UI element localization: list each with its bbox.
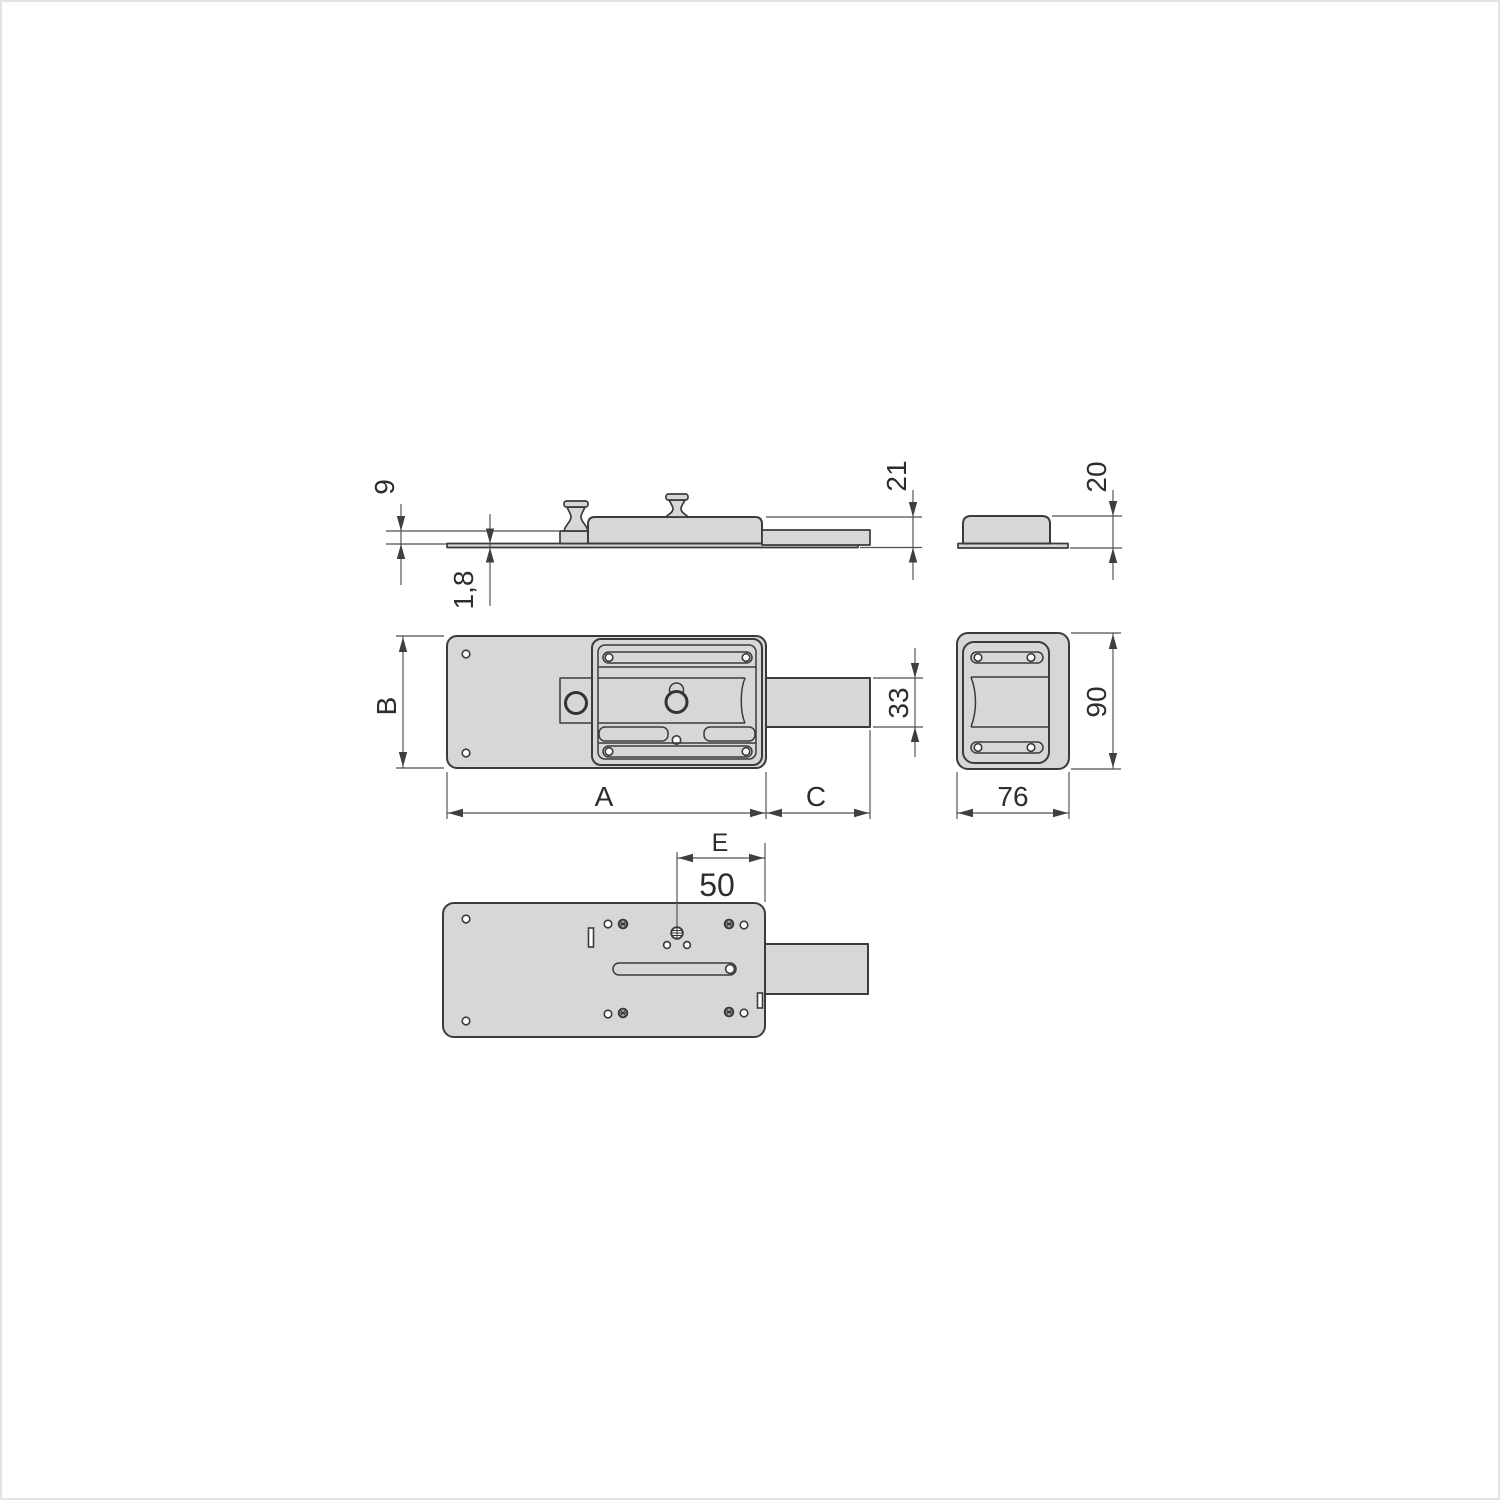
bolt-profile bbox=[762, 530, 870, 545]
screw-hole bbox=[462, 749, 470, 757]
keyhole bbox=[666, 692, 687, 713]
dim-body-height: 21 bbox=[766, 460, 922, 580]
dim-plate-height-label: B bbox=[371, 697, 402, 716]
dim-end-width: 76 bbox=[957, 772, 1069, 819]
end-profile-view: 20 bbox=[958, 461, 1122, 580]
bolt-plan bbox=[766, 678, 870, 727]
rivet bbox=[619, 1009, 628, 1018]
rivet bbox=[619, 920, 628, 929]
dim-end-height: 90 bbox=[1071, 633, 1121, 769]
dim-end-height-label: 90 bbox=[1081, 686, 1112, 717]
lock-body-profile bbox=[588, 517, 762, 544]
lock-case-profile bbox=[963, 516, 1050, 544]
strip-screw-hole bbox=[1027, 744, 1035, 752]
screw-hole bbox=[462, 915, 470, 923]
slit bbox=[758, 993, 763, 1008]
strip-screw-hole bbox=[1027, 654, 1035, 662]
rivet bbox=[725, 920, 734, 929]
rivet bbox=[725, 1008, 734, 1017]
dim-end-width-label: 76 bbox=[997, 781, 1028, 812]
screw-hole bbox=[604, 1010, 612, 1018]
side-profile-view: 9 1,8 21 bbox=[369, 460, 922, 609]
dim-body-height-label: 21 bbox=[881, 460, 912, 491]
strip-screw-hole bbox=[605, 654, 613, 662]
lock-dimension-drawing: 9 1,8 21 20 bbox=[0, 0, 1500, 1500]
screw-hole bbox=[462, 650, 470, 658]
strip-screw-hole bbox=[974, 654, 982, 662]
strip-screw-hole bbox=[605, 748, 613, 756]
guide-hole bbox=[566, 693, 587, 714]
small-hole bbox=[664, 942, 671, 949]
dim-key-distance-label: E bbox=[712, 829, 729, 857]
screw-hole bbox=[740, 1009, 748, 1017]
slit bbox=[589, 928, 594, 947]
dim-case-height: 20 bbox=[1052, 461, 1122, 580]
screw-hole bbox=[462, 1017, 470, 1025]
dim-plate-length: A bbox=[447, 772, 766, 819]
dim-key-distance-value: 50 bbox=[699, 867, 735, 903]
dim-bolt-throw: C bbox=[766, 730, 870, 819]
dim-plate-height: B bbox=[371, 636, 444, 768]
back-view: E 50 bbox=[443, 829, 868, 1037]
bolt-back bbox=[765, 944, 868, 994]
key-centre-hole bbox=[671, 927, 683, 939]
dim-bolt-throw-label: C bbox=[806, 781, 826, 812]
screw-hole bbox=[740, 921, 748, 929]
strip-screw-hole bbox=[742, 654, 750, 662]
dim-bolt-height-label: 33 bbox=[883, 687, 914, 718]
dim-step-height-label: 9 bbox=[369, 479, 400, 495]
slot-end-hole bbox=[726, 965, 735, 974]
small-hole bbox=[684, 942, 691, 949]
technical-drawing-canvas: 9 1,8 21 20 bbox=[0, 0, 1500, 1500]
dim-plate-length-label: A bbox=[595, 781, 614, 812]
dim-bolt-height: 33 bbox=[873, 648, 923, 757]
plan-view: B 33 A C bbox=[371, 636, 923, 819]
dim-step-height: 9 bbox=[369, 479, 559, 585]
strip-screw-hole bbox=[974, 744, 982, 752]
end-view: 90 76 bbox=[957, 633, 1121, 819]
slide-knob-left bbox=[564, 501, 588, 531]
knob-step bbox=[560, 531, 588, 544]
screw-hole bbox=[604, 920, 612, 928]
strip-screw-hole bbox=[742, 748, 750, 756]
slide-knob-right bbox=[666, 494, 688, 517]
dim-plate-thickness-label: 1,8 bbox=[448, 571, 479, 610]
dim-plate-thickness: 1,8 bbox=[448, 514, 494, 609]
dim-case-height-label: 20 bbox=[1081, 461, 1112, 492]
